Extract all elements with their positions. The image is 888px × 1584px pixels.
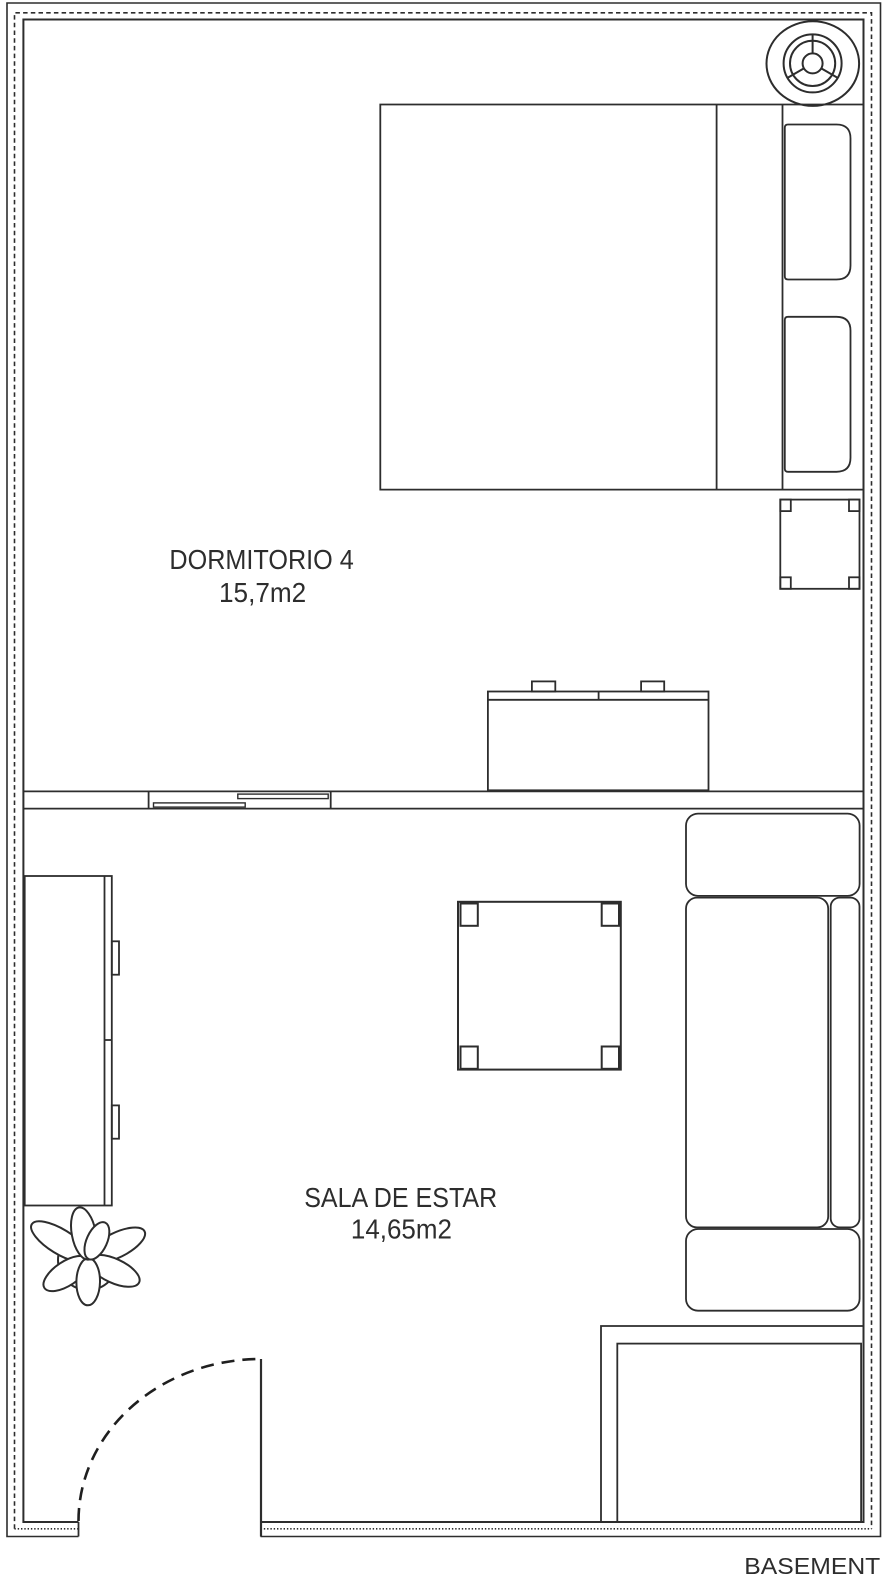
- svg-text:15,7m2: 15,7m2: [219, 577, 306, 608]
- svg-text:BASEMENT: BASEMENT: [744, 1553, 880, 1579]
- svg-text:DORMITORIO 4: DORMITORIO 4: [169, 544, 353, 575]
- svg-text:SALA DE ESTAR: SALA DE ESTAR: [304, 1182, 497, 1213]
- svg-text:14,65m2: 14,65m2: [351, 1214, 452, 1245]
